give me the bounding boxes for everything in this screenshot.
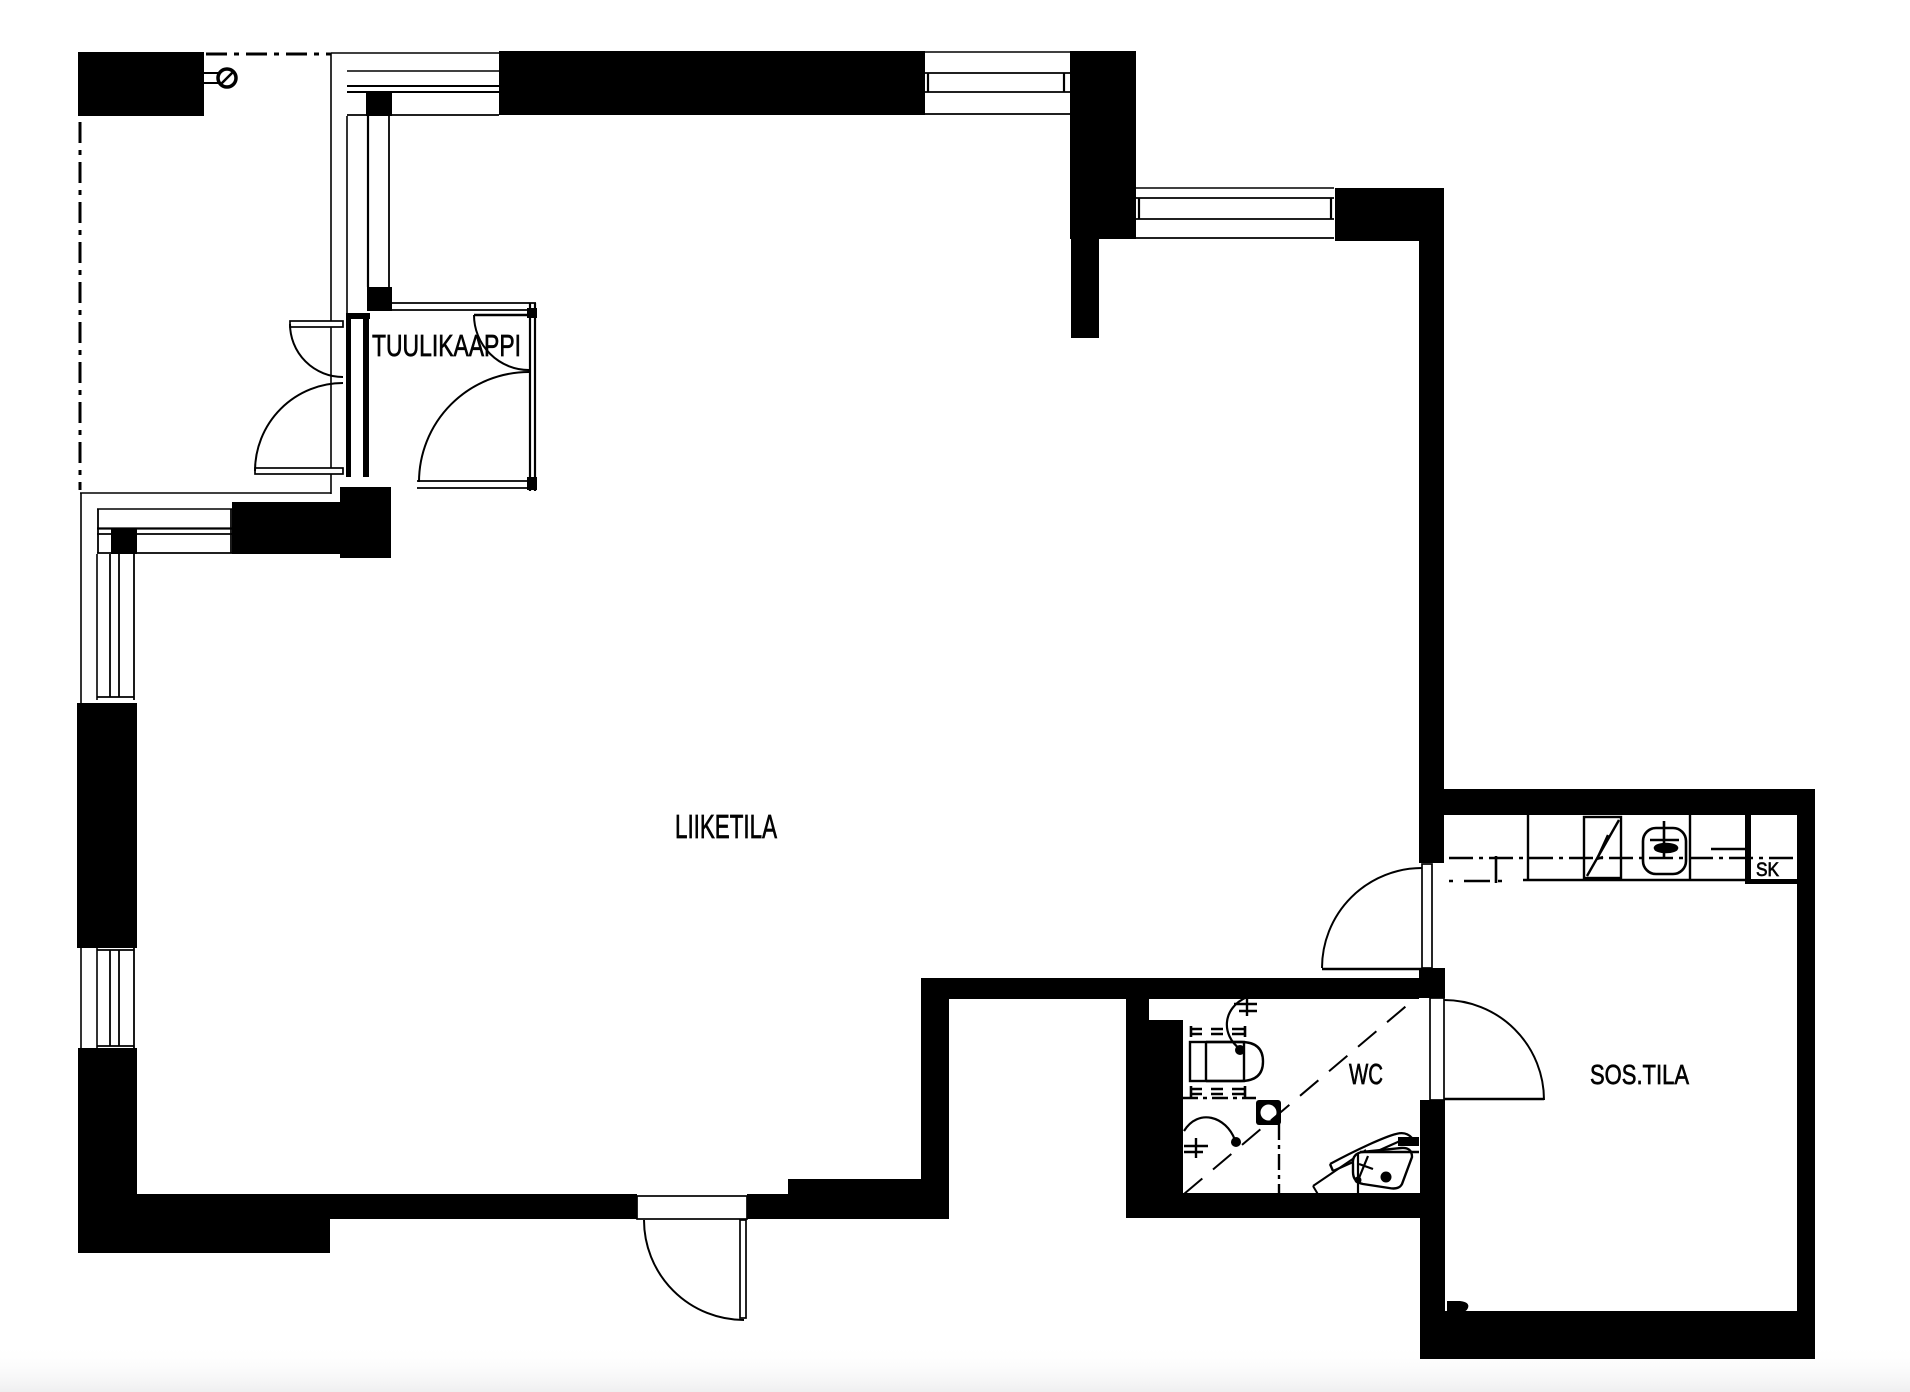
svg-text:SK: SK xyxy=(1756,859,1779,881)
svg-text:WC: WC xyxy=(1349,1059,1383,1091)
svg-text:TUULIKAAPPI: TUULIKAAPPI xyxy=(372,328,521,363)
svg-text:SOS.TILA: SOS.TILA xyxy=(1590,1059,1689,1090)
svg-text:LIIKETILA: LIIKETILA xyxy=(675,808,777,845)
